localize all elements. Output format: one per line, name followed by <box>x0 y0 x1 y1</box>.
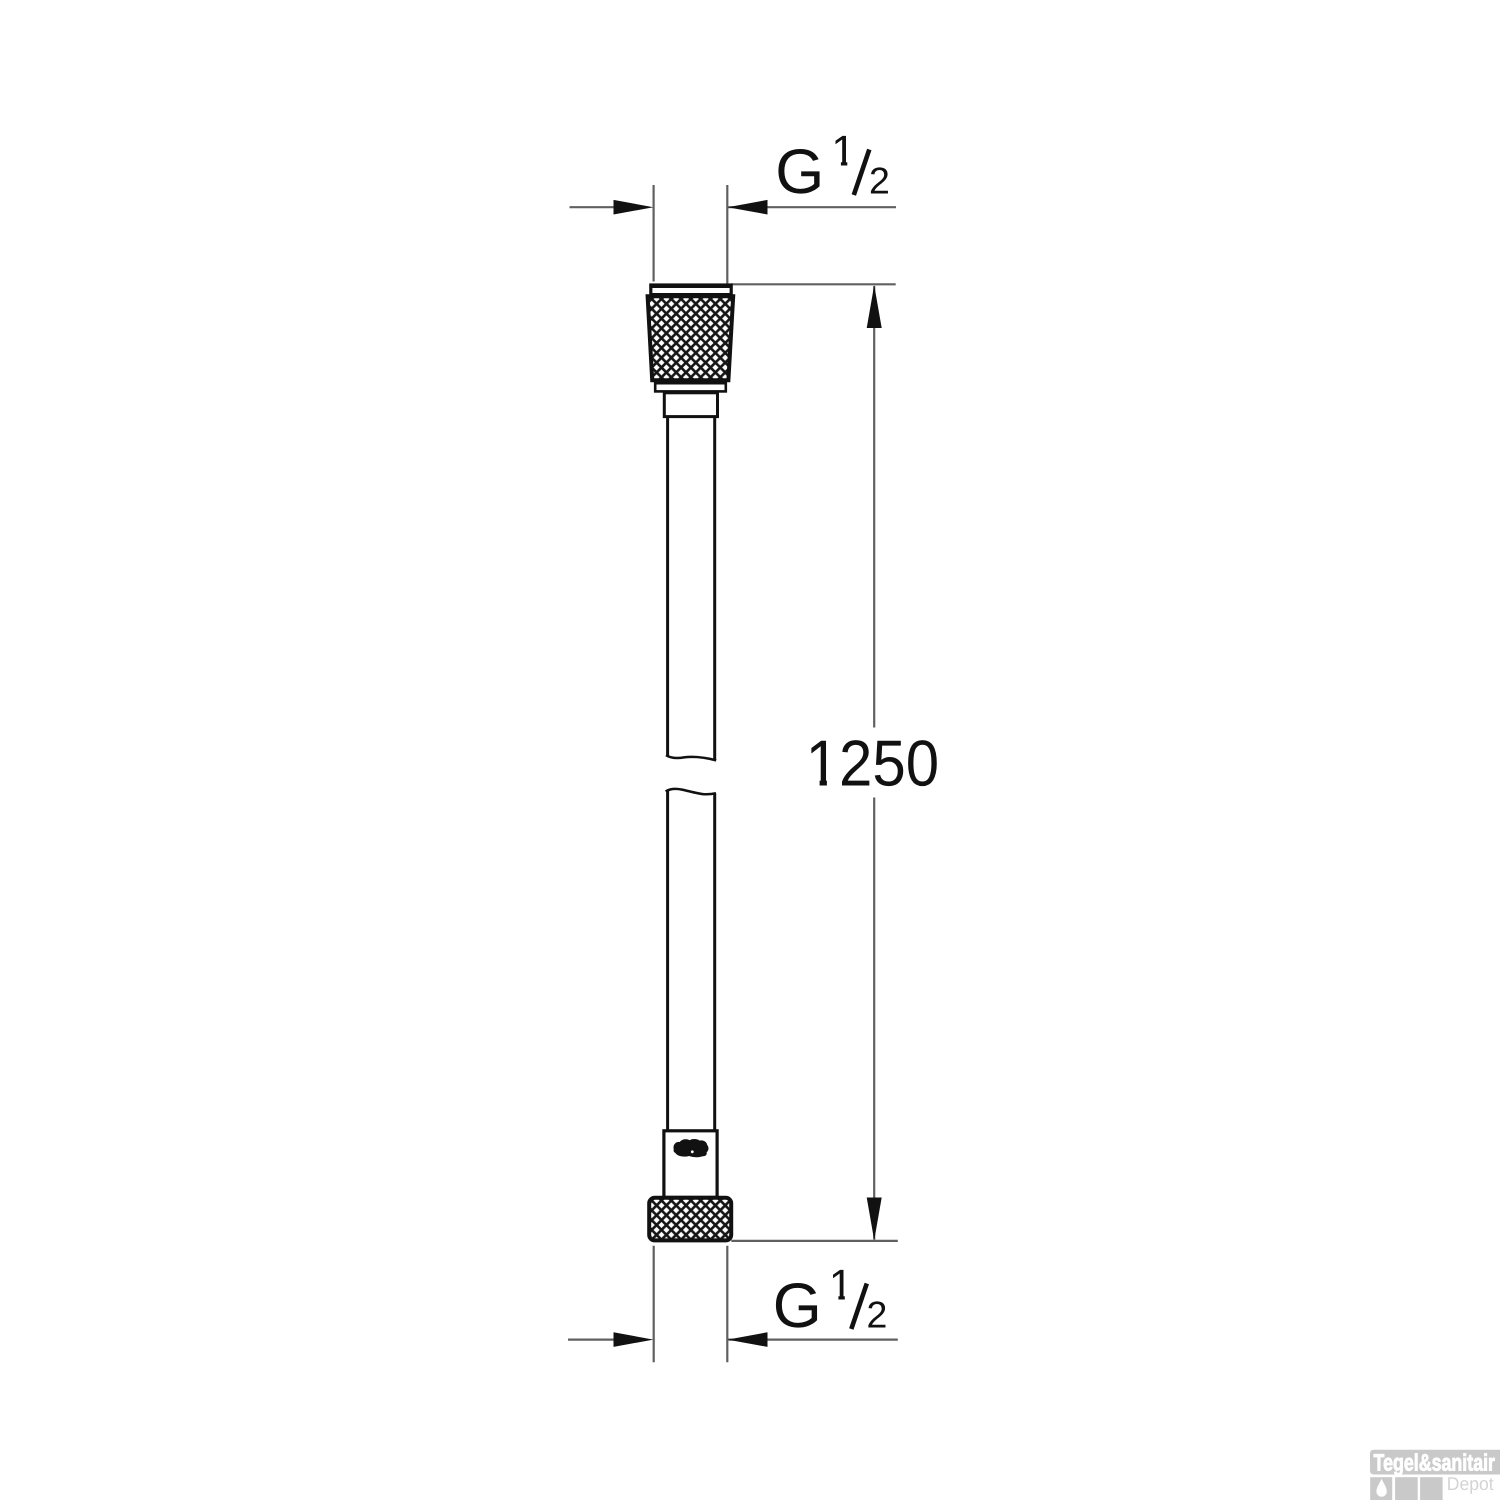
svg-text:1250: 1250 <box>806 726 940 799</box>
svg-text:2: 2 <box>867 1294 888 1336</box>
svg-text:Depot: Depot <box>1447 1473 1494 1494</box>
svg-text:G: G <box>775 137 824 207</box>
svg-text:G: G <box>773 1271 822 1341</box>
svg-text:2: 2 <box>869 160 890 202</box>
svg-text:Tegel&sanitair: Tegel&sanitair <box>1374 1450 1496 1476</box>
svg-text:1: 1 <box>829 1262 853 1310</box>
svg-text:1: 1 <box>831 128 855 176</box>
